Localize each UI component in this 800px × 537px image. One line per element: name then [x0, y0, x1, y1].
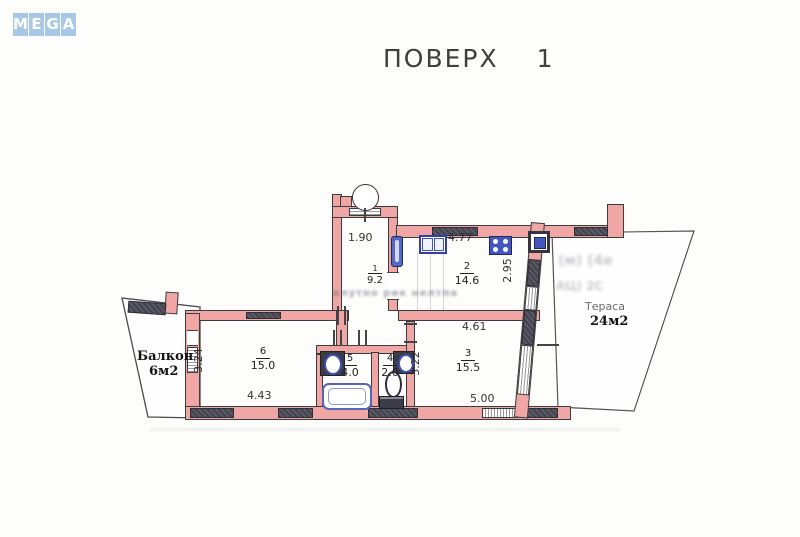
bleed-through-text: (м) (4е	[558, 253, 613, 269]
bathtub-icon	[322, 383, 372, 410]
terrace-area: 24м2	[590, 314, 628, 329]
fridge-icon	[391, 236, 403, 267]
wall-tick	[337, 306, 339, 325]
chimney-tick	[364, 208, 366, 222]
dimension-label: 5.00	[470, 392, 495, 405]
window-dark	[128, 301, 167, 316]
window-dark	[521, 310, 536, 346]
room-label-3: 3 15.5	[448, 348, 488, 374]
room-label-6: 6 15.0	[246, 346, 280, 372]
room-area: 2.0	[381, 366, 399, 380]
page-title: ПОВЕРХ 1	[383, 44, 555, 73]
dimension-label: 2.95	[501, 258, 514, 283]
window-dark	[246, 312, 281, 319]
wall	[607, 204, 624, 238]
open-areas-outline	[0, 0, 800, 537]
room-label-4: 4 2.0	[377, 353, 403, 379]
vent-inner	[534, 237, 546, 249]
logo-letter: M	[13, 13, 28, 36]
toilet-tank	[379, 396, 404, 409]
title-floor-number: 1	[537, 44, 555, 73]
room-area: 15.5	[456, 361, 481, 375]
door-tick	[365, 330, 367, 346]
room-label-2: 2 14.6	[447, 261, 487, 287]
bathtub-inner	[328, 388, 366, 405]
room-number: 2	[460, 261, 474, 274]
door-opening	[187, 330, 198, 346]
window-dark	[368, 408, 418, 418]
dimension-label: 4.61	[462, 320, 487, 333]
room-area: 15.0	[251, 359, 276, 373]
sink-bowl	[434, 238, 445, 251]
door-arc-line	[430, 248, 431, 310]
window-dark	[526, 259, 540, 287]
window-dark	[190, 408, 234, 418]
scan-smudge	[150, 428, 620, 431]
door-tick	[404, 323, 417, 325]
window	[524, 286, 538, 311]
dimension-label: 3.22	[409, 351, 422, 376]
dimension-label: 3.24	[192, 348, 205, 373]
stove-icon	[489, 236, 512, 255]
vent-shaft-icon	[528, 231, 550, 253]
title-text: ПОВЕРХ	[383, 44, 499, 73]
room-label-1: 1 9.2	[362, 264, 388, 287]
window-dark	[278, 408, 313, 418]
door-arc-line	[443, 246, 444, 310]
wall-tick	[344, 306, 346, 325]
door-arc-line	[417, 252, 418, 310]
wall-tick	[537, 344, 559, 346]
logo-letter: G	[45, 13, 60, 36]
bleed-through-text: АЦ) 2С	[556, 279, 603, 293]
door-tick	[404, 341, 417, 343]
window-dark	[574, 227, 608, 236]
kitchen-sink-icon	[419, 235, 447, 254]
room-area: 4.0	[341, 366, 359, 380]
burner	[503, 247, 508, 252]
balcony-label: Балкон	[137, 349, 193, 364]
room-number: 1	[368, 264, 381, 274]
room-area: 9.2	[367, 274, 383, 287]
watermark-text: влутно рик нелтпа	[333, 288, 458, 299]
room-label-5: 5 4.0	[334, 353, 366, 379]
fridge-inner	[395, 240, 399, 262]
door-tick	[358, 330, 360, 346]
logo-letter: A	[61, 13, 76, 36]
burner	[493, 239, 498, 244]
dimension-label: 4.77	[448, 231, 473, 244]
terrace-label: Тераса	[585, 300, 625, 313]
burner	[503, 239, 508, 244]
room-number: 5	[343, 353, 357, 366]
sink-bowl	[422, 238, 433, 251]
door-tick	[333, 330, 335, 346]
room-number: 3	[461, 348, 475, 361]
chimney-circle-icon	[352, 184, 379, 211]
dimension-label: 1.90	[348, 231, 373, 244]
balcony-area: 6м2	[149, 364, 178, 379]
window-dark	[527, 408, 558, 418]
room-number: 6	[256, 346, 270, 359]
room-number: 4	[383, 353, 397, 366]
mega-logo: M E G A	[13, 13, 76, 36]
floor-plan-page: M E G A ПОВЕРХ 1	[0, 0, 800, 537]
burner	[493, 247, 498, 252]
wall	[164, 292, 179, 315]
door-tick	[340, 330, 342, 346]
dimension-label: 4.43	[247, 389, 272, 402]
room-area: 14.6	[455, 274, 480, 288]
logo-letter: E	[29, 13, 44, 36]
